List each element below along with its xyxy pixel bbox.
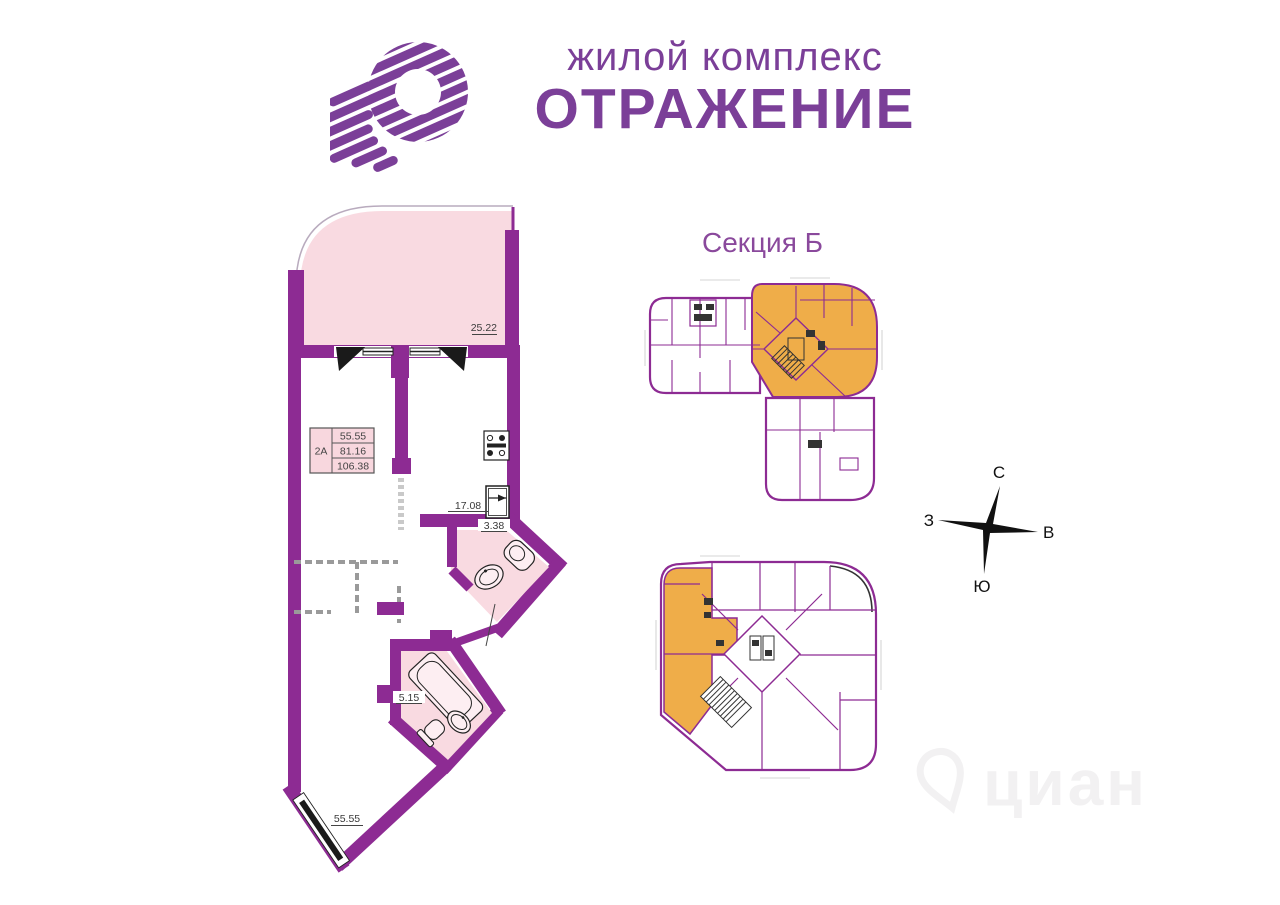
window-icon xyxy=(363,348,393,355)
dim-living-label: 55.55 xyxy=(334,813,360,825)
fridge-icon xyxy=(486,486,509,518)
compass-star xyxy=(938,486,1038,574)
watermark-text: циан xyxy=(983,751,1148,815)
highlight-apartment-area xyxy=(752,284,877,397)
brand-name: ОТРАЖЕНИЕ xyxy=(480,80,970,140)
compass-rose-icon: С В Ю З xyxy=(920,462,1055,602)
brand-tagline: жилой комплекс xyxy=(480,36,970,78)
dim-terrace-label: 25.22 xyxy=(471,322,497,334)
dim-bath-label: 5.15 xyxy=(399,692,420,704)
partition-block xyxy=(377,602,404,615)
compass-north-label: С xyxy=(993,463,1005,482)
watermark: циан xyxy=(915,733,1195,833)
dim-wc-label: 3.38 xyxy=(484,520,505,532)
dim-kitchen-label: 17.08 xyxy=(455,500,481,512)
compass-south-label: Ю xyxy=(973,577,990,596)
area-row: 106.38 xyxy=(337,461,369,473)
section-plan-top xyxy=(638,268,886,510)
page: { "brand": { "tagline": "жилой комплекс"… xyxy=(0,0,1280,905)
area-row: 55.55 xyxy=(340,431,366,443)
stove-icon xyxy=(484,431,509,460)
area-row: 81.16 xyxy=(340,446,366,458)
compass-east-label: В xyxy=(1043,523,1054,542)
logo-mark xyxy=(330,30,490,175)
brand-block: жилой комплекс ОТРАЖЕНИЕ xyxy=(480,36,970,140)
section-plan-bottom xyxy=(643,548,885,802)
unit-number: 2А xyxy=(315,446,328,458)
section-title: Секция Б xyxy=(640,227,885,259)
floor-plan: 25.22 xyxy=(265,190,575,890)
compass-west-label: З xyxy=(924,511,934,530)
pin-icon xyxy=(915,743,973,823)
window-icon xyxy=(410,348,440,355)
logo-stripes xyxy=(330,30,490,175)
terrace-room: 25.22 xyxy=(288,206,519,352)
apartment-info-table: 2А 55.55 81.16 106.38 xyxy=(310,428,374,473)
